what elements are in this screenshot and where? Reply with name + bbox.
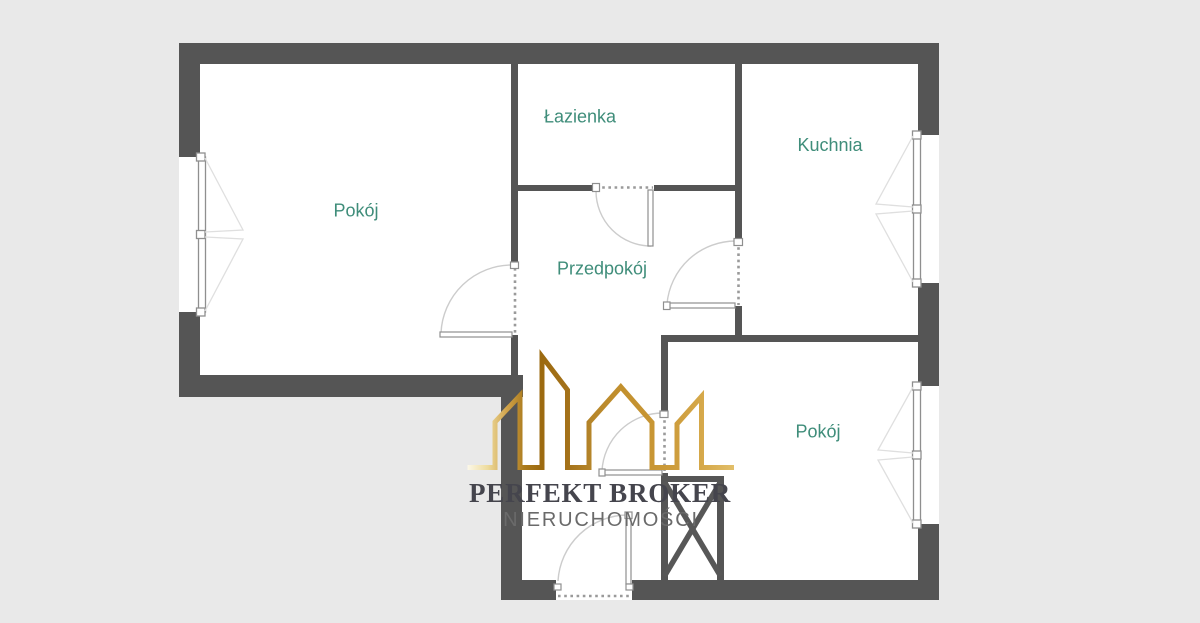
svg-text:Łazienka: Łazienka bbox=[544, 107, 617, 127]
svg-text:Pokój: Pokój bbox=[795, 422, 840, 442]
svg-text:NIERUCHOMOŚCI: NIERUCHOMOŚCI bbox=[503, 507, 699, 531]
svg-text:PERFEKT BROKER: PERFEKT BROKER bbox=[469, 478, 731, 508]
svg-text:Przedpokój: Przedpokój bbox=[557, 259, 647, 279]
svg-text:Pokój: Pokój bbox=[333, 201, 378, 221]
svg-text:Kuchnia: Kuchnia bbox=[797, 135, 863, 155]
